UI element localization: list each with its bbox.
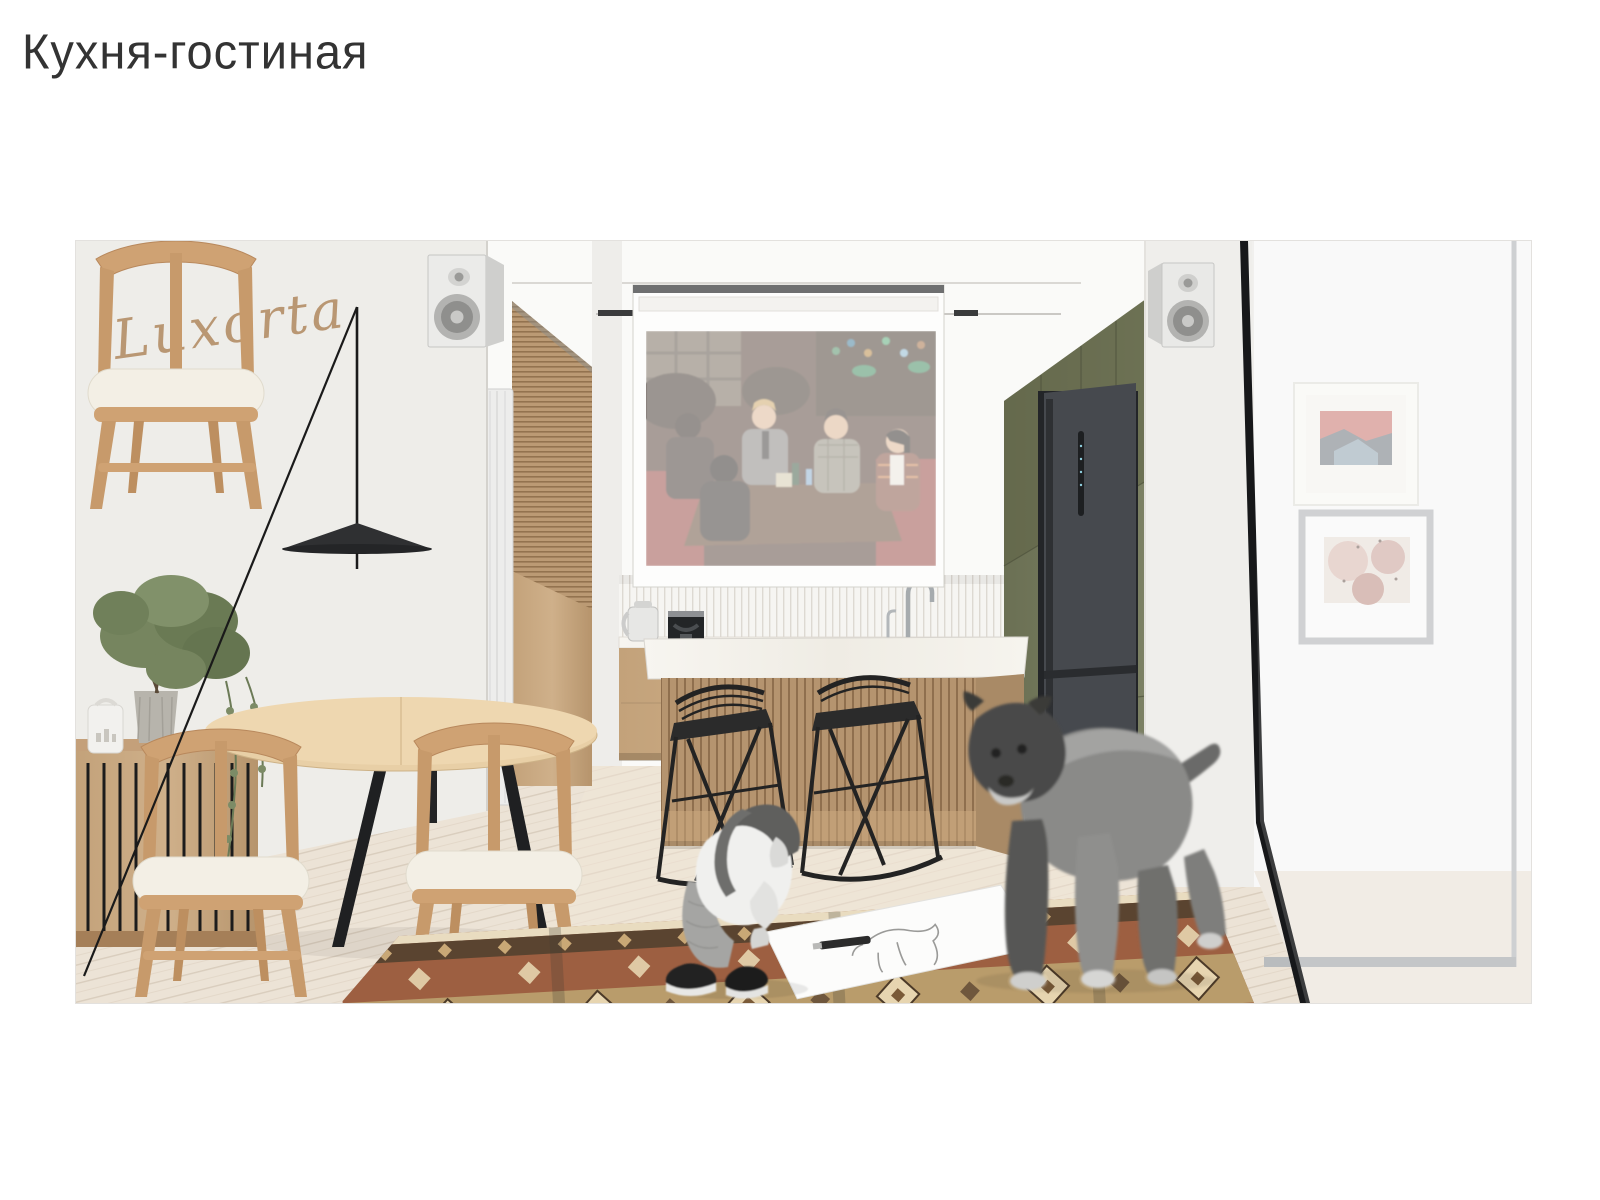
speaker-right <box>1148 263 1214 347</box>
fridge-control-panel <box>1078 431 1084 516</box>
dog-nose <box>998 775 1014 787</box>
coffee-machine <box>668 611 704 642</box>
dog-front-leg-2 <box>1075 833 1119 979</box>
dog-head <box>968 703 1065 802</box>
aroma-diffuser <box>88 700 123 753</box>
wall-return <box>592 241 622 766</box>
render-image-frame: Luxorta <box>75 240 1532 1004</box>
island-top <box>644 637 1028 679</box>
presentation-page: Кухня-гостиная <box>0 0 1600 1200</box>
glass-sheen <box>1252 241 1531 1003</box>
dog-paw <box>1010 972 1046 990</box>
speaker-left <box>428 255 504 347</box>
projection-screen <box>633 285 944 587</box>
screen-translucency <box>646 331 936 566</box>
tv-scene <box>636 331 936 566</box>
page-title: Кухня-гостиная <box>22 23 369 80</box>
dog-front-leg <box>1005 819 1049 979</box>
glass-partition-area <box>1240 241 1531 1003</box>
render-image: Luxorta <box>76 241 1531 1003</box>
dog-hind-leg <box>1138 865 1178 977</box>
dog-eye <box>991 748 1001 758</box>
